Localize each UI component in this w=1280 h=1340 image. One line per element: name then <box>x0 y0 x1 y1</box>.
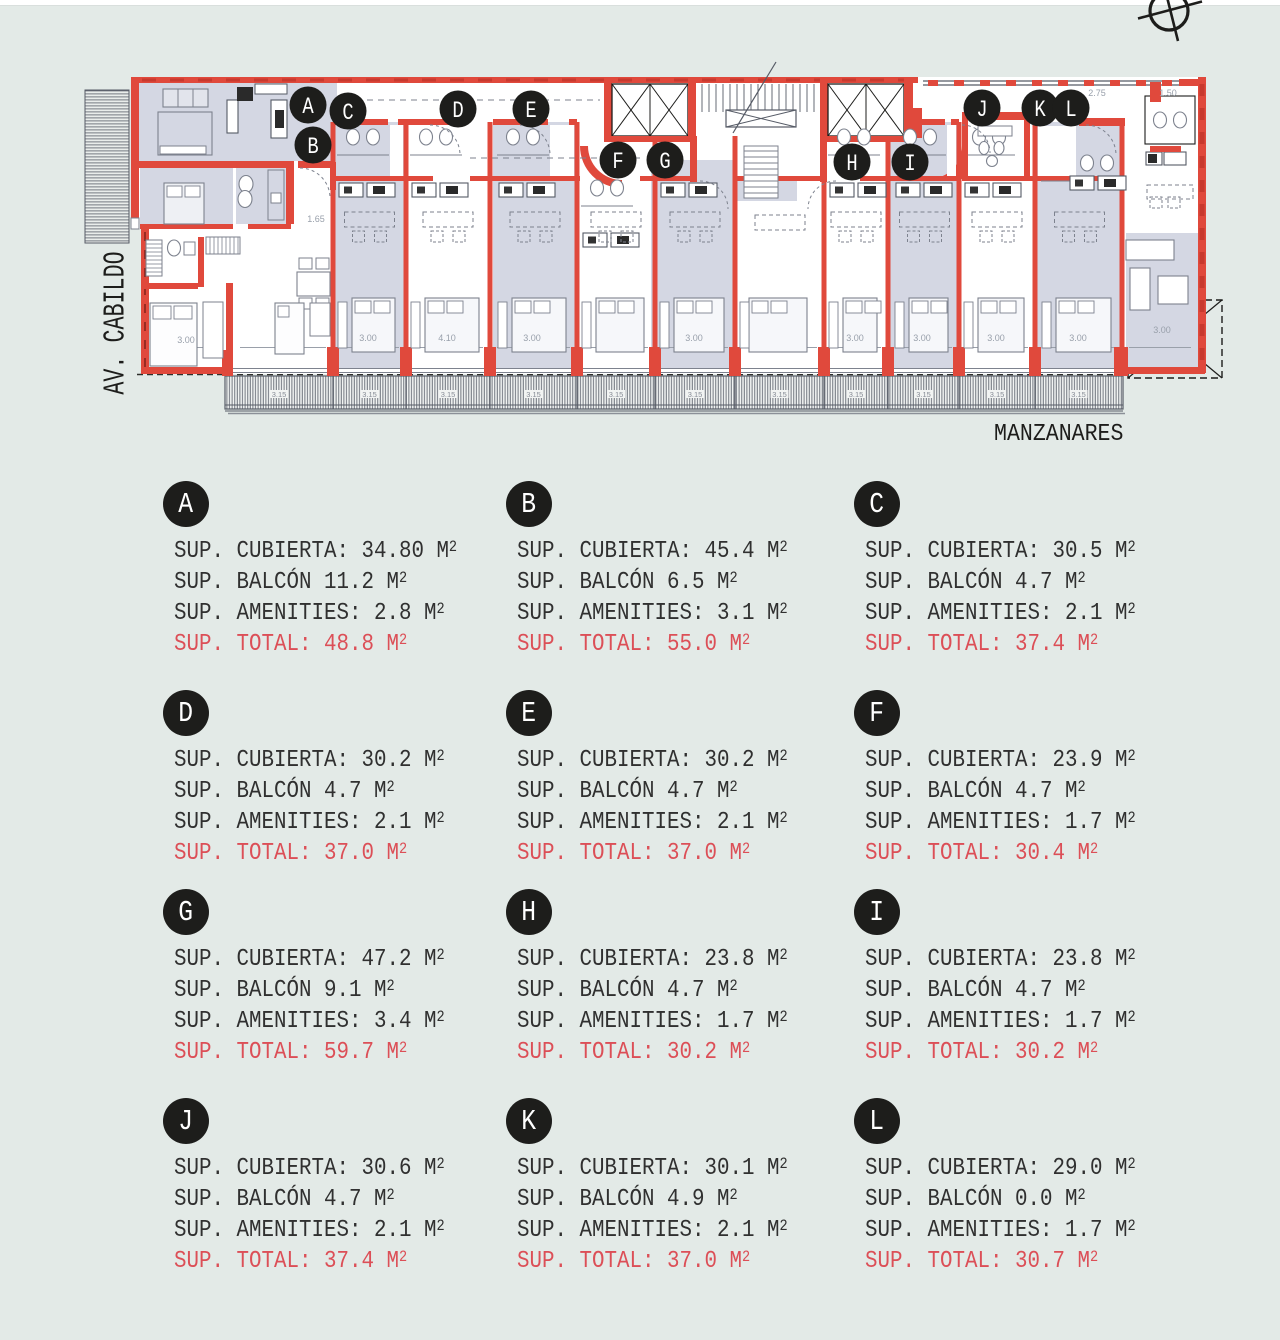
svg-text:B: B <box>307 134 318 160</box>
svg-text:A: A <box>302 94 314 120</box>
svg-text:D: D <box>452 98 463 124</box>
svg-text:3.00: 3.00 <box>846 333 864 343</box>
svg-text:3.00: 3.00 <box>1069 333 1087 343</box>
svg-text:I: I <box>904 151 915 177</box>
svg-text:3.15: 3.15 <box>362 390 377 399</box>
svg-text:H: H <box>846 151 857 177</box>
svg-text:3.00: 3.00 <box>177 335 195 345</box>
svg-text:3.00: 3.00 <box>1153 325 1171 335</box>
svg-text:3.00: 3.00 <box>913 333 931 343</box>
svg-text:3.15: 3.15 <box>272 390 287 399</box>
svg-text:3.15: 3.15 <box>849 390 864 399</box>
svg-text:3.15: 3.15 <box>916 390 931 399</box>
svg-text:4.10: 4.10 <box>438 333 456 343</box>
svg-text:1.65: 1.65 <box>307 214 325 224</box>
svg-text:3.00: 3.00 <box>685 333 703 343</box>
svg-text:3.00: 3.00 <box>359 333 377 343</box>
svg-text:C: C <box>342 100 353 126</box>
svg-text:3.15: 3.15 <box>441 390 456 399</box>
svg-text:K: K <box>1034 97 1046 123</box>
svg-text:J: J <box>976 97 987 123</box>
svg-text:2.75: 2.75 <box>1088 88 1106 98</box>
svg-text:3.15: 3.15 <box>1071 390 1086 399</box>
svg-text:E: E <box>525 98 536 124</box>
svg-text:L: L <box>1065 97 1076 123</box>
svg-text:3.15: 3.15 <box>526 390 541 399</box>
svg-text:G: G <box>659 149 670 175</box>
svg-text:F: F <box>612 149 623 175</box>
svg-text:3.15: 3.15 <box>609 390 624 399</box>
svg-text:3.15: 3.15 <box>772 390 787 399</box>
svg-text:3.00: 3.00 <box>987 333 1005 343</box>
svg-text:3.15: 3.15 <box>990 390 1005 399</box>
svg-text:1.50: 1.50 <box>1159 88 1177 98</box>
svg-text:3.00: 3.00 <box>523 333 541 343</box>
svg-text:3.15: 3.15 <box>688 390 703 399</box>
